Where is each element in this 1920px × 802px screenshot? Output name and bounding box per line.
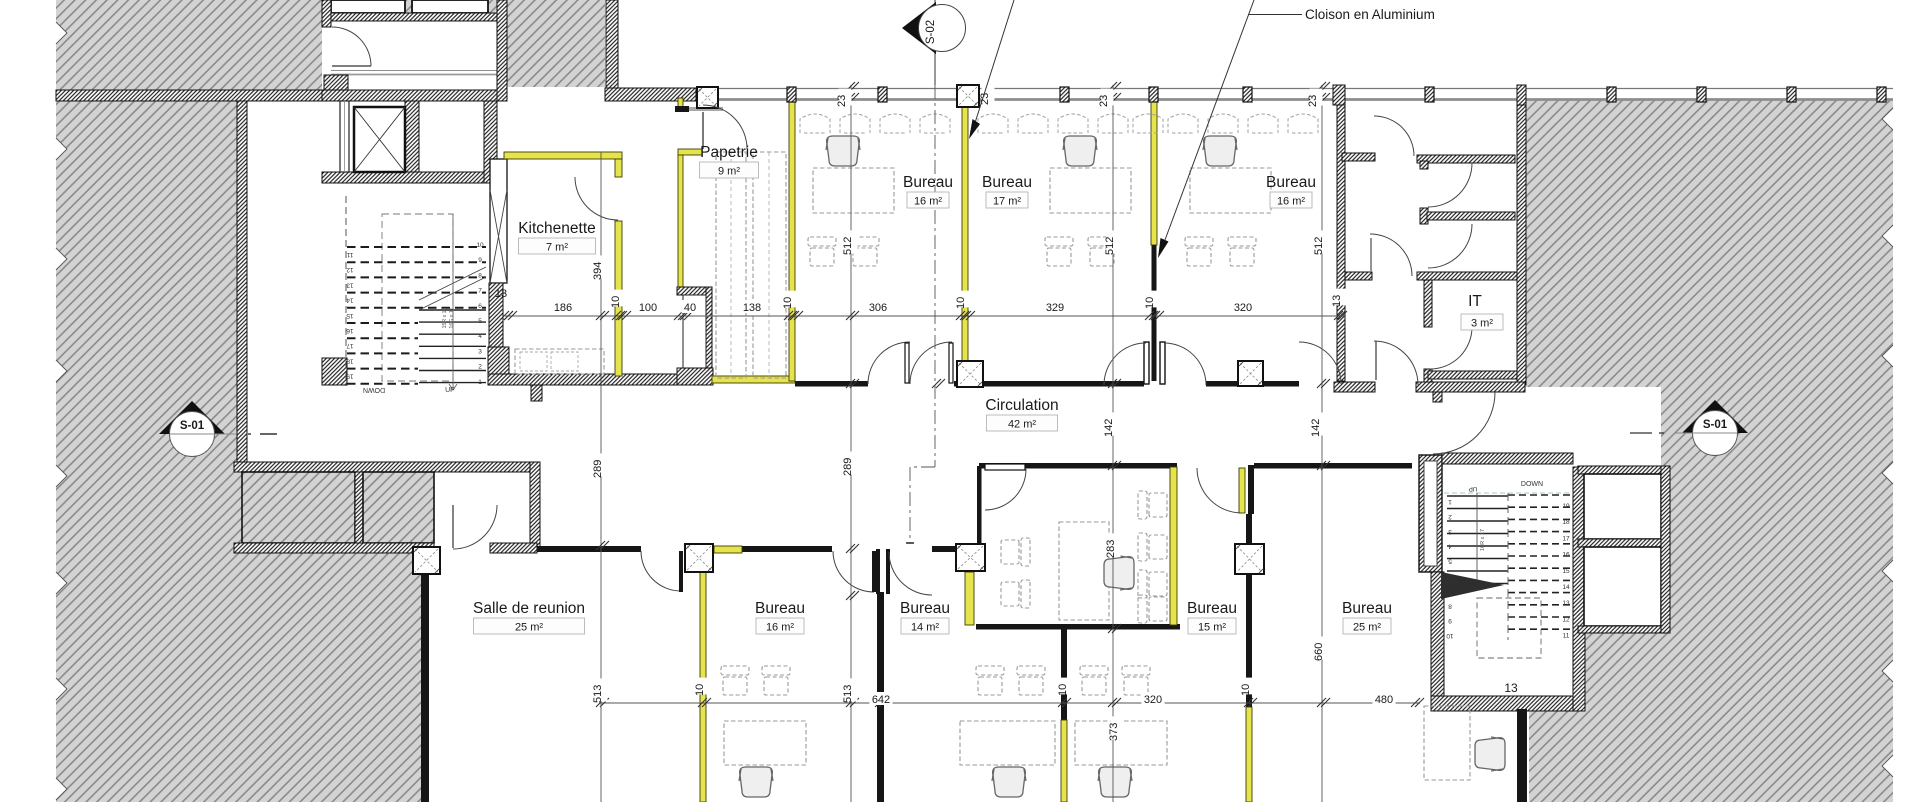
svg-text:S-02: S-02 <box>925 20 937 44</box>
svg-text:25 m²: 25 m² <box>1353 622 1381 634</box>
svg-text:512: 512 <box>1104 237 1116 255</box>
svg-text:306: 306 <box>869 302 887 314</box>
svg-text:16R x 17: 16R x 17 <box>1480 529 1486 551</box>
svg-text:9 m²: 9 m² <box>718 166 740 178</box>
svg-text:10: 10 <box>955 297 967 309</box>
svg-text:8: 8 <box>1448 602 1452 609</box>
svg-text:1: 1 <box>478 379 482 386</box>
svg-text:289: 289 <box>592 460 604 478</box>
svg-text:394: 394 <box>592 262 604 280</box>
svg-text:13: 13 <box>1331 295 1343 307</box>
svg-text:15R x 16: 15R x 16 <box>442 308 448 329</box>
svg-text:7: 7 <box>478 288 482 295</box>
svg-text:Bureau: Bureau <box>982 174 1032 191</box>
svg-text:513: 513 <box>842 685 854 703</box>
svg-text:13: 13 <box>1562 600 1570 607</box>
svg-text:15: 15 <box>1562 568 1570 575</box>
svg-text:3 m²: 3 m² <box>1471 318 1493 330</box>
svg-text:12: 12 <box>346 266 354 273</box>
svg-text:13: 13 <box>1504 681 1518 695</box>
svg-text:13: 13 <box>346 281 354 288</box>
svg-text:186: 186 <box>554 302 572 314</box>
svg-text:Bureau: Bureau <box>1187 600 1237 617</box>
svg-text:10: 10 <box>476 242 484 249</box>
svg-text:8: 8 <box>478 272 482 279</box>
svg-text:5: 5 <box>1448 558 1452 565</box>
svg-text:UP: UP <box>445 387 455 394</box>
svg-text:15 m²: 15 m² <box>1198 622 1226 634</box>
svg-text:10: 10 <box>1240 684 1252 696</box>
svg-text:16G x 17: 16G x 17 <box>449 307 455 328</box>
svg-text:17 m²: 17 m² <box>993 196 1021 208</box>
svg-text:289: 289 <box>842 458 854 476</box>
svg-text:15: 15 <box>346 312 354 319</box>
svg-text:25 m²: 25 m² <box>515 622 543 634</box>
svg-text:100: 100 <box>639 302 657 314</box>
svg-text:513: 513 <box>592 685 604 703</box>
svg-text:7: 7 <box>1448 587 1452 594</box>
svg-text:Cloison en Aluminium: Cloison en Aluminium <box>1305 7 1435 22</box>
svg-text:IT: IT <box>1468 293 1482 310</box>
svg-text:DOWN: DOWN <box>1521 481 1543 488</box>
svg-text:18: 18 <box>1562 519 1570 526</box>
svg-text:9: 9 <box>1448 617 1452 624</box>
svg-text:11: 11 <box>1563 633 1570 640</box>
svg-text:7 m²: 7 m² <box>546 242 568 254</box>
svg-text:16 m²: 16 m² <box>766 622 794 634</box>
svg-text:23: 23 <box>836 95 848 107</box>
svg-text:Papetrie: Papetrie <box>700 144 758 161</box>
svg-text:480: 480 <box>1375 694 1393 706</box>
svg-text:11: 11 <box>346 251 353 258</box>
svg-text:10: 10 <box>694 684 706 696</box>
svg-text:23: 23 <box>1098 95 1110 107</box>
svg-text:17: 17 <box>346 342 354 349</box>
svg-text:17: 17 <box>1562 535 1570 542</box>
svg-text:Bureau: Bureau <box>900 600 950 617</box>
svg-text:142: 142 <box>1310 419 1322 437</box>
svg-text:3: 3 <box>1448 528 1452 535</box>
svg-text:23: 23 <box>1307 95 1319 107</box>
svg-text:Kitchenette: Kitchenette <box>518 220 596 237</box>
svg-text:4: 4 <box>1448 543 1452 550</box>
svg-text:UP: UP <box>1468 485 1477 492</box>
svg-text:138: 138 <box>743 302 761 314</box>
svg-text:12: 12 <box>1562 616 1570 623</box>
svg-text:14: 14 <box>346 297 354 304</box>
svg-text:Salle de reunion: Salle de reunion <box>473 600 585 617</box>
svg-text:16: 16 <box>346 327 354 334</box>
svg-text:329: 329 <box>1046 302 1064 314</box>
svg-text:16 m²: 16 m² <box>914 196 942 208</box>
svg-text:DOWN: DOWN <box>363 386 385 393</box>
svg-text:512: 512 <box>1313 237 1325 255</box>
svg-text:16 m²: 16 m² <box>1277 196 1305 208</box>
svg-text:4: 4 <box>478 333 482 340</box>
svg-text:19: 19 <box>1562 503 1570 510</box>
svg-text:142: 142 <box>1103 419 1115 437</box>
svg-text:283: 283 <box>1105 540 1117 558</box>
svg-text:6: 6 <box>1448 573 1452 580</box>
svg-text:10: 10 <box>782 297 794 309</box>
svg-text:Bureau: Bureau <box>755 600 805 617</box>
svg-text:10: 10 <box>1446 632 1454 639</box>
svg-text:512: 512 <box>842 237 854 255</box>
svg-text:14: 14 <box>1562 584 1570 591</box>
svg-text:S-01: S-01 <box>180 420 205 432</box>
svg-text:13: 13 <box>495 288 507 300</box>
svg-text:10: 10 <box>1144 297 1156 309</box>
svg-text:Bureau: Bureau <box>903 174 953 191</box>
svg-text:10: 10 <box>1057 684 1069 696</box>
svg-text:16: 16 <box>1562 552 1570 559</box>
svg-text:6: 6 <box>478 303 482 310</box>
svg-text:18: 18 <box>346 357 354 364</box>
svg-text:320: 320 <box>1144 694 1162 706</box>
svg-text:Circulation: Circulation <box>985 397 1058 414</box>
svg-text:Bureau: Bureau <box>1266 174 1316 191</box>
svg-text:373: 373 <box>1108 723 1120 741</box>
svg-text:19: 19 <box>346 373 354 380</box>
svg-text:14 m²: 14 m² <box>911 622 939 634</box>
svg-text:10: 10 <box>610 296 622 308</box>
svg-text:1: 1 <box>1448 498 1452 505</box>
svg-text:2: 2 <box>478 364 482 371</box>
svg-text:660: 660 <box>1313 643 1325 661</box>
svg-text:40: 40 <box>684 302 696 314</box>
svg-text:642: 642 <box>872 694 890 706</box>
svg-text:S-01: S-01 <box>1703 419 1728 431</box>
svg-text:Bureau: Bureau <box>1342 600 1392 617</box>
svg-text:320: 320 <box>1234 302 1252 314</box>
svg-text:2: 2 <box>1448 513 1452 520</box>
svg-text:5: 5 <box>478 318 482 325</box>
svg-text:9: 9 <box>478 257 482 264</box>
svg-text:3: 3 <box>478 348 482 355</box>
svg-text:42 m²: 42 m² <box>1008 419 1036 431</box>
